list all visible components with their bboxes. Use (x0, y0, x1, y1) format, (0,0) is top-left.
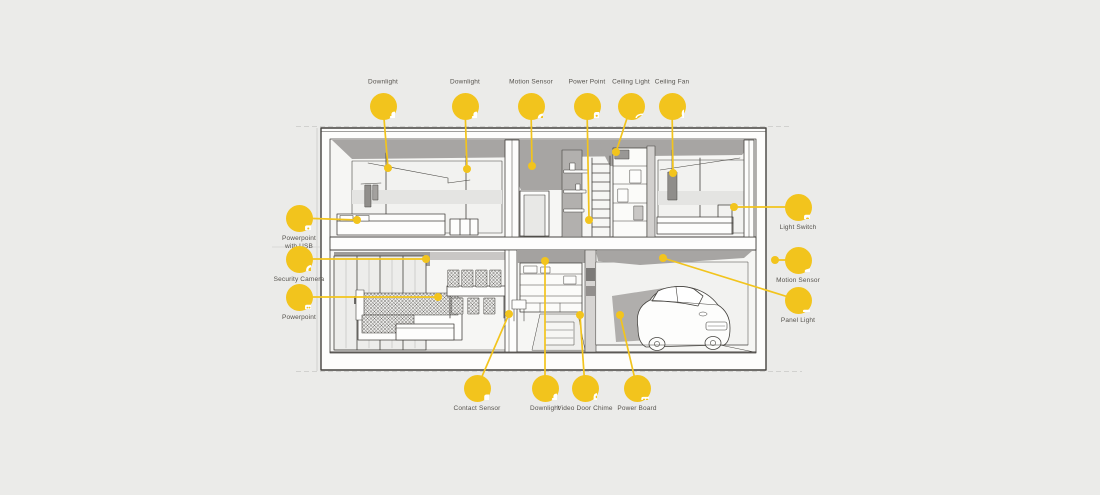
callout-label-powerpoint: Powerpoint (257, 314, 341, 322)
downlight-icon (372, 95, 395, 118)
target-dot-power-board (616, 311, 624, 319)
callout-power-point[interactable] (574, 93, 601, 120)
callout-label-power-board: Power Board (595, 405, 679, 413)
target-dot-power-point (585, 216, 593, 224)
target-dot-ceiling-fan (669, 169, 677, 177)
target-dot-panel-light (659, 254, 667, 262)
lower-floor (334, 250, 754, 352)
powerpoint-usb-icon (288, 207, 311, 230)
power-point-icon (576, 95, 599, 118)
downlight-icon (534, 377, 557, 400)
callout-downlight-2[interactable] (452, 93, 479, 120)
callout-light-switch[interactable] (785, 194, 812, 221)
callout-powerpoint[interactable] (286, 284, 313, 311)
powerpoint-icon (288, 286, 311, 309)
target-dot-video-door-chime (576, 311, 584, 319)
callout-ceiling-fan[interactable] (659, 93, 686, 120)
light-switch-icon (787, 196, 810, 219)
target-dot-downlight-3 (541, 257, 549, 265)
smart-home-infographic: DownlightDownlightMotion SensorPower Poi… (0, 0, 1100, 495)
downlight-icon (454, 95, 477, 118)
callout-ceiling-light[interactable] (618, 93, 645, 120)
target-dot-motion-sensor-2 (771, 256, 779, 264)
video-door-chime-icon (574, 377, 597, 400)
callout-motion-sensor-2[interactable] (785, 247, 812, 274)
callout-label-light-switch: Light Switch (756, 224, 840, 232)
target-dot-powerpoint-with-usb (353, 216, 361, 224)
ceiling-fan-icon (661, 95, 684, 118)
motion-sensor-icon (520, 95, 543, 118)
target-dot-powerpoint (434, 293, 442, 301)
callout-downlight-1[interactable] (370, 93, 397, 120)
callout-power-board[interactable] (624, 375, 651, 402)
callout-motion-sensor-1[interactable] (518, 93, 545, 120)
callout-powerpoint-with-usb[interactable] (286, 205, 313, 232)
callout-label-ceiling-fan: Ceiling Fan (630, 79, 714, 87)
ceiling-light-icon (620, 95, 643, 118)
callout-label-downlight-1: Downlight (341, 79, 425, 87)
callout-security-camera[interactable] (286, 246, 313, 273)
motion-sensor-2-icon (787, 249, 810, 272)
target-dot-downlight-2 (463, 165, 471, 173)
target-dot-contact-sensor (505, 310, 513, 318)
callout-label-panel-light: Panel Light (756, 317, 840, 325)
callout-label-security-camera: Security Camera (257, 276, 341, 284)
upper-hallway (520, 191, 549, 236)
callout-panel-light[interactable] (785, 287, 812, 314)
callout-video-door-chime[interactable] (572, 375, 599, 402)
security-camera-icon (288, 248, 311, 271)
target-dot-ceiling-light (612, 148, 620, 156)
house-cutaway-drawing (0, 0, 1100, 495)
callout-label-motion-sensor-2: Motion Sensor (756, 277, 840, 285)
target-dot-motion-sensor-1 (528, 162, 536, 170)
garage (585, 250, 754, 352)
callout-contact-sensor[interactable] (464, 375, 491, 402)
target-dot-light-switch (730, 203, 738, 211)
upper-floor (332, 140, 754, 237)
target-dot-downlight-1 (384, 164, 392, 172)
contact-sensor-icon (466, 377, 489, 400)
target-dot-security-camera (422, 255, 430, 263)
panel-light-icon (787, 289, 810, 312)
callout-downlight-3[interactable] (532, 375, 559, 402)
power-board-icon (626, 377, 649, 400)
